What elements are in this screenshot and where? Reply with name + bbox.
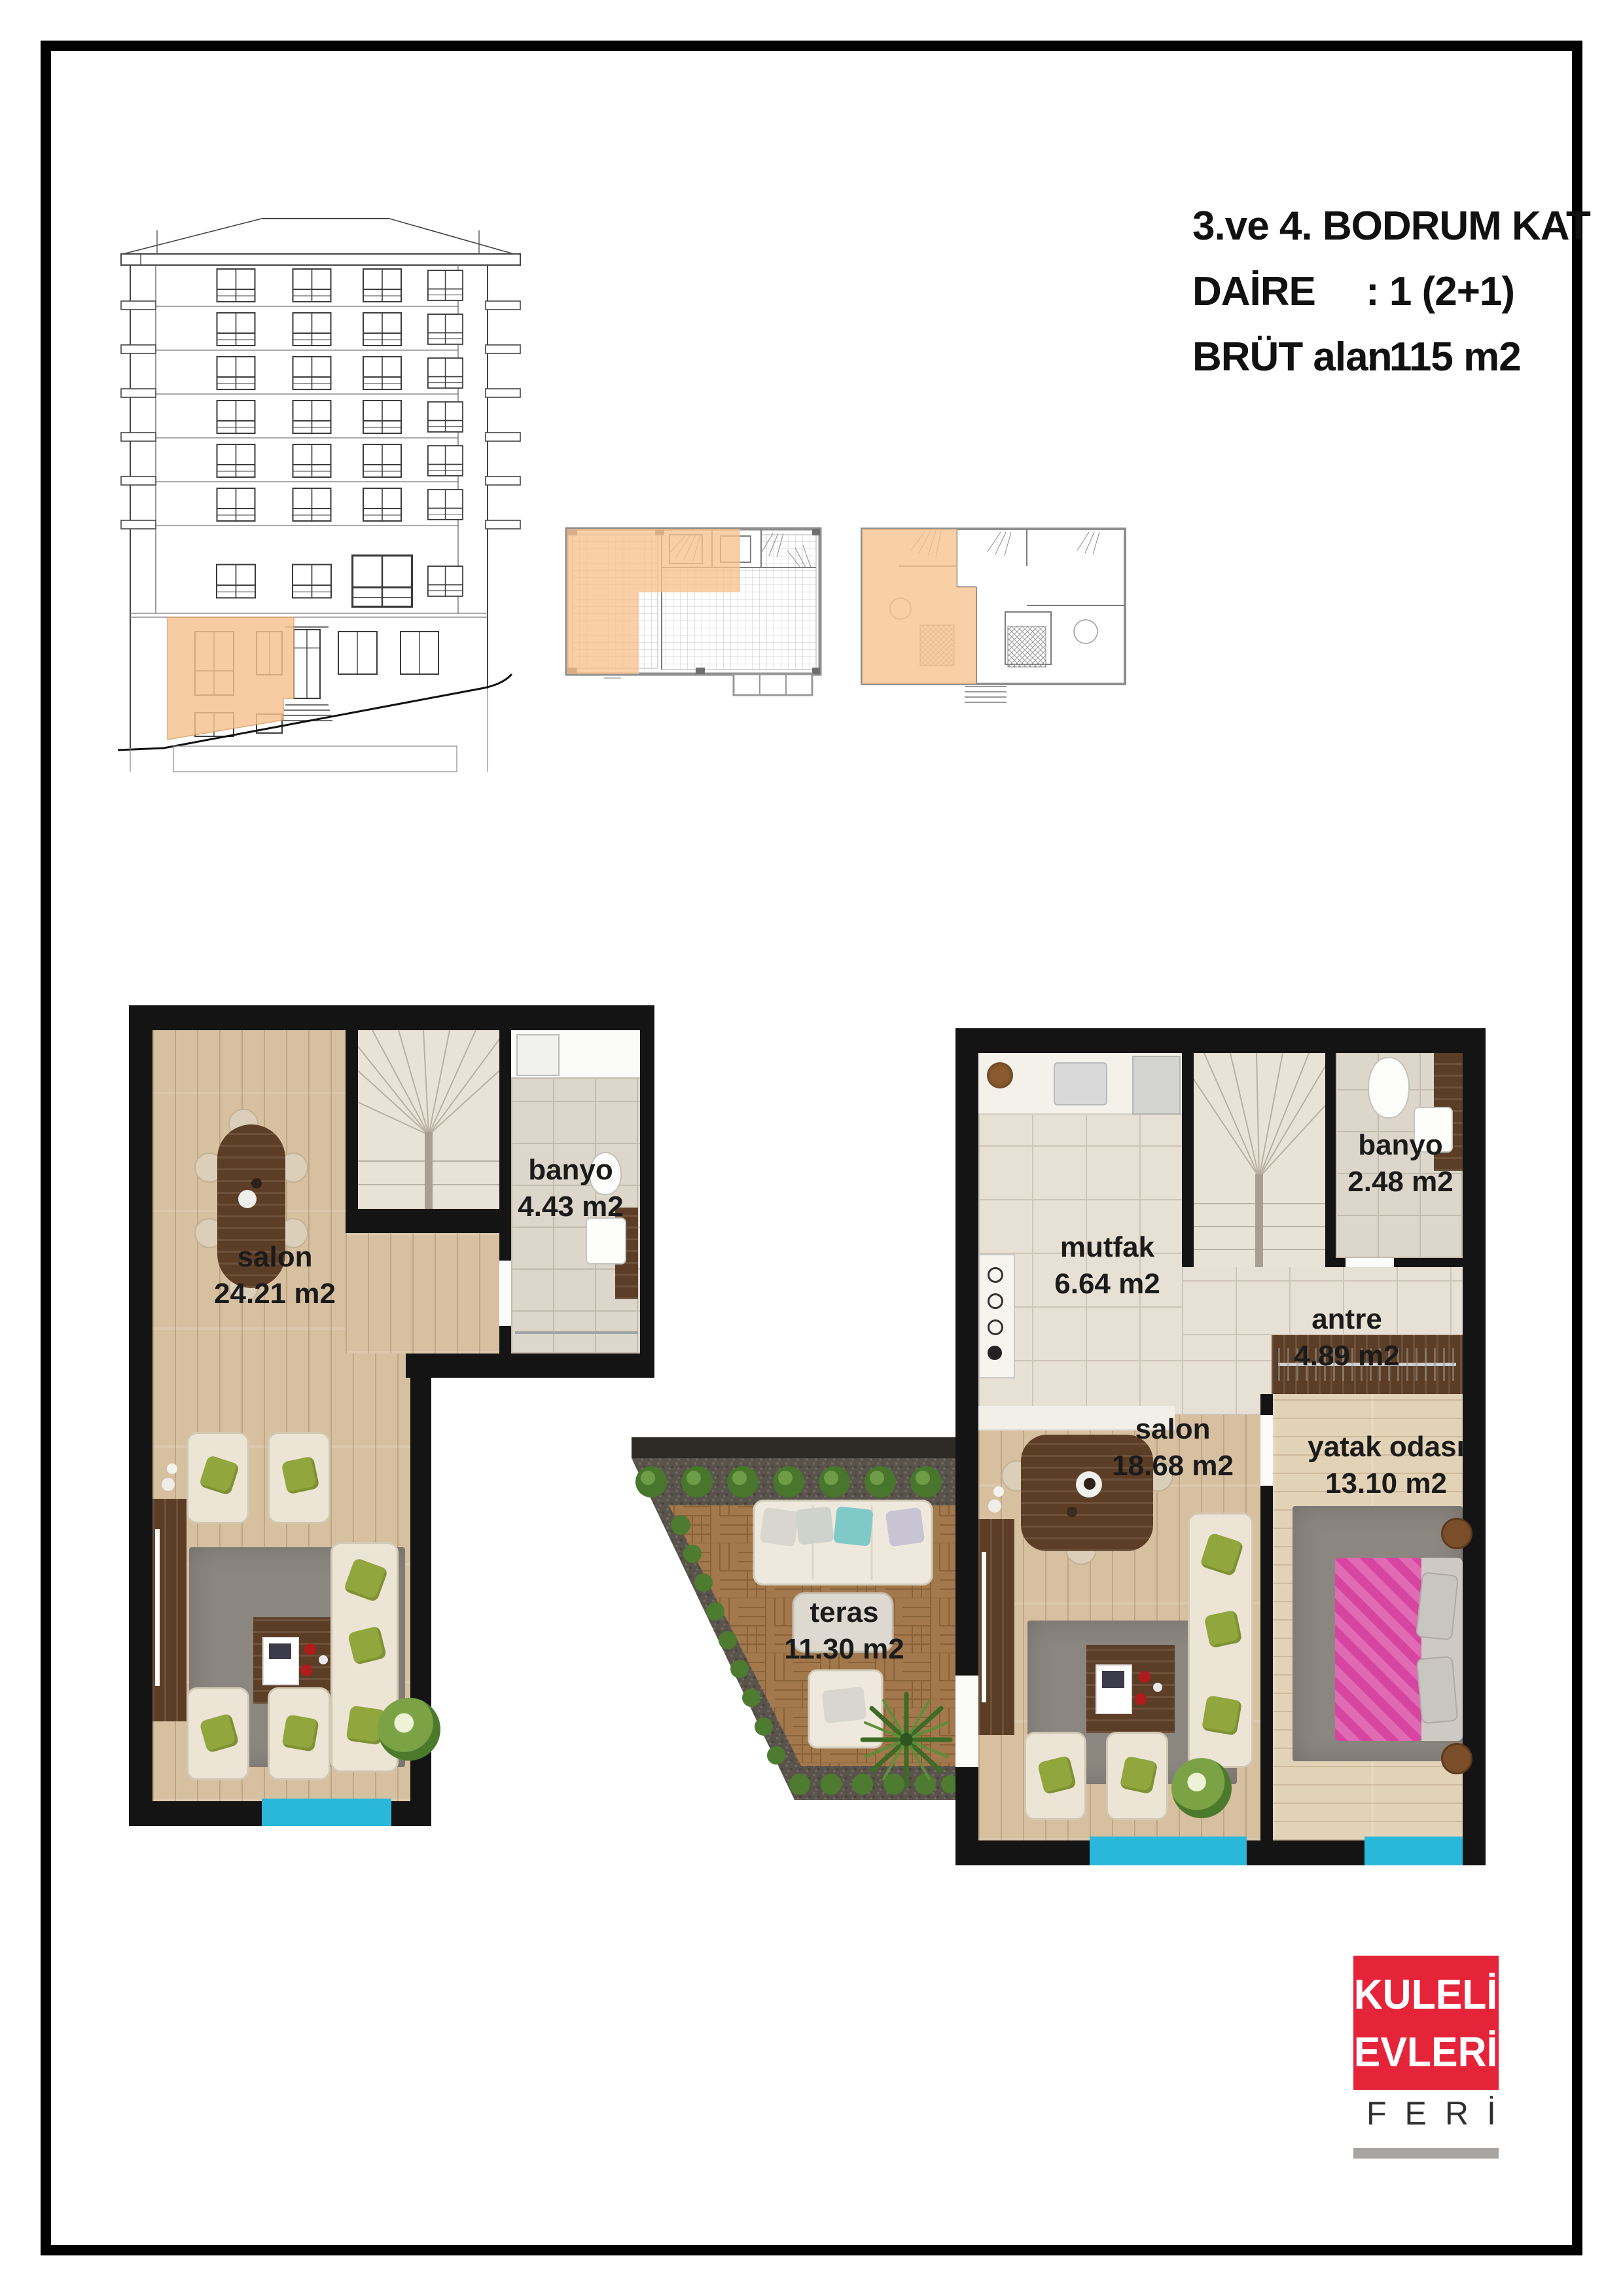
armchair bbox=[268, 1687, 330, 1780]
floor-title: 3.ve 4. BODRUM KAT bbox=[1192, 194, 1590, 259]
title-floor-line: 3.ve 4. BODRUM KAT bbox=[1192, 194, 1590, 259]
title-block: 3.ve 4. BODRUM KAT DAİRE : 1 (2+1) BRÜT … bbox=[1192, 194, 1590, 390]
plant-icon bbox=[378, 1698, 440, 1761]
armchair bbox=[268, 1432, 330, 1524]
brochure-page: 3.ve 4. BODRUM KAT DAİRE : 1 (2+1) BRÜT … bbox=[0, 0, 1623, 2296]
plant-icon bbox=[1171, 1758, 1232, 1818]
outdoor-sofa bbox=[754, 1501, 932, 1585]
brut-value: : 115 m2 bbox=[1366, 325, 1521, 390]
room-label-banyo-right: banyo 2.48 m2 bbox=[1347, 1127, 1453, 1200]
title-brut-line: BRÜT alan : 115 m2 bbox=[1192, 325, 1590, 390]
logo-subtitle: FERİ bbox=[1353, 2094, 1499, 2132]
daire-label: DAİRE bbox=[1192, 259, 1366, 325]
room-label-antre: antre 4.89 m2 bbox=[1294, 1301, 1399, 1374]
key-plan-thumbnail-1 bbox=[565, 527, 835, 710]
stove-icon bbox=[978, 1254, 1015, 1378]
armchair bbox=[1024, 1732, 1086, 1820]
nightstand-icon bbox=[1441, 1743, 1472, 1774]
toilet-icon bbox=[1368, 1057, 1410, 1119]
armchair bbox=[187, 1687, 249, 1780]
room-label-salon-left: salon 24.21 m2 bbox=[214, 1239, 336, 1312]
bowl-icon bbox=[987, 1062, 1013, 1088]
daire-value: : 1 (2+1) bbox=[1366, 259, 1514, 325]
room-label-salon-right: salon 18.68 m2 bbox=[1112, 1411, 1234, 1484]
key-plan-thumbnail-2 bbox=[860, 527, 1127, 713]
room-label-teras: teras 11.30 m2 bbox=[784, 1594, 904, 1668]
window-strip bbox=[1364, 1837, 1463, 1865]
room-label-mutfak: mutfak 6.64 m2 bbox=[1054, 1229, 1160, 1302]
coffee-table bbox=[1086, 1645, 1175, 1733]
kitchen-appliance-icon bbox=[1132, 1056, 1181, 1115]
window-strip bbox=[262, 1799, 391, 1826]
floor-plan-left bbox=[129, 1005, 654, 1826]
logo-line1: KULELİ bbox=[1354, 1965, 1498, 2023]
window-strip bbox=[1090, 1837, 1247, 1865]
building-elevation-drawing bbox=[118, 190, 524, 785]
armchair bbox=[187, 1432, 249, 1524]
washer-icon bbox=[516, 1034, 560, 1076]
title-daire-line: DAİRE : 1 (2+1) bbox=[1192, 259, 1590, 325]
logo-line2: EVLERİ bbox=[1354, 2023, 1498, 2081]
nightstand-icon bbox=[1441, 1518, 1472, 1549]
room-label-banyo-left: banyo 4.43 m2 bbox=[518, 1152, 623, 1225]
brand-logo: KULELİ EVLERİ bbox=[1353, 1956, 1499, 2090]
kitchen-sink-icon bbox=[1054, 1062, 1107, 1105]
elevation-highlight-overlay bbox=[168, 617, 294, 740]
right-staircase bbox=[1194, 1053, 1325, 1267]
sofa bbox=[1188, 1513, 1253, 1768]
room-label-yatak-odasi: yatak odası 13.10 m2 bbox=[1308, 1429, 1465, 1502]
brut-label: BRÜT alan bbox=[1192, 325, 1366, 390]
armchair bbox=[1106, 1732, 1168, 1820]
logo-underline-bar bbox=[1353, 2148, 1499, 2159]
bed bbox=[1335, 1558, 1463, 1741]
left-staircase bbox=[358, 1030, 499, 1209]
